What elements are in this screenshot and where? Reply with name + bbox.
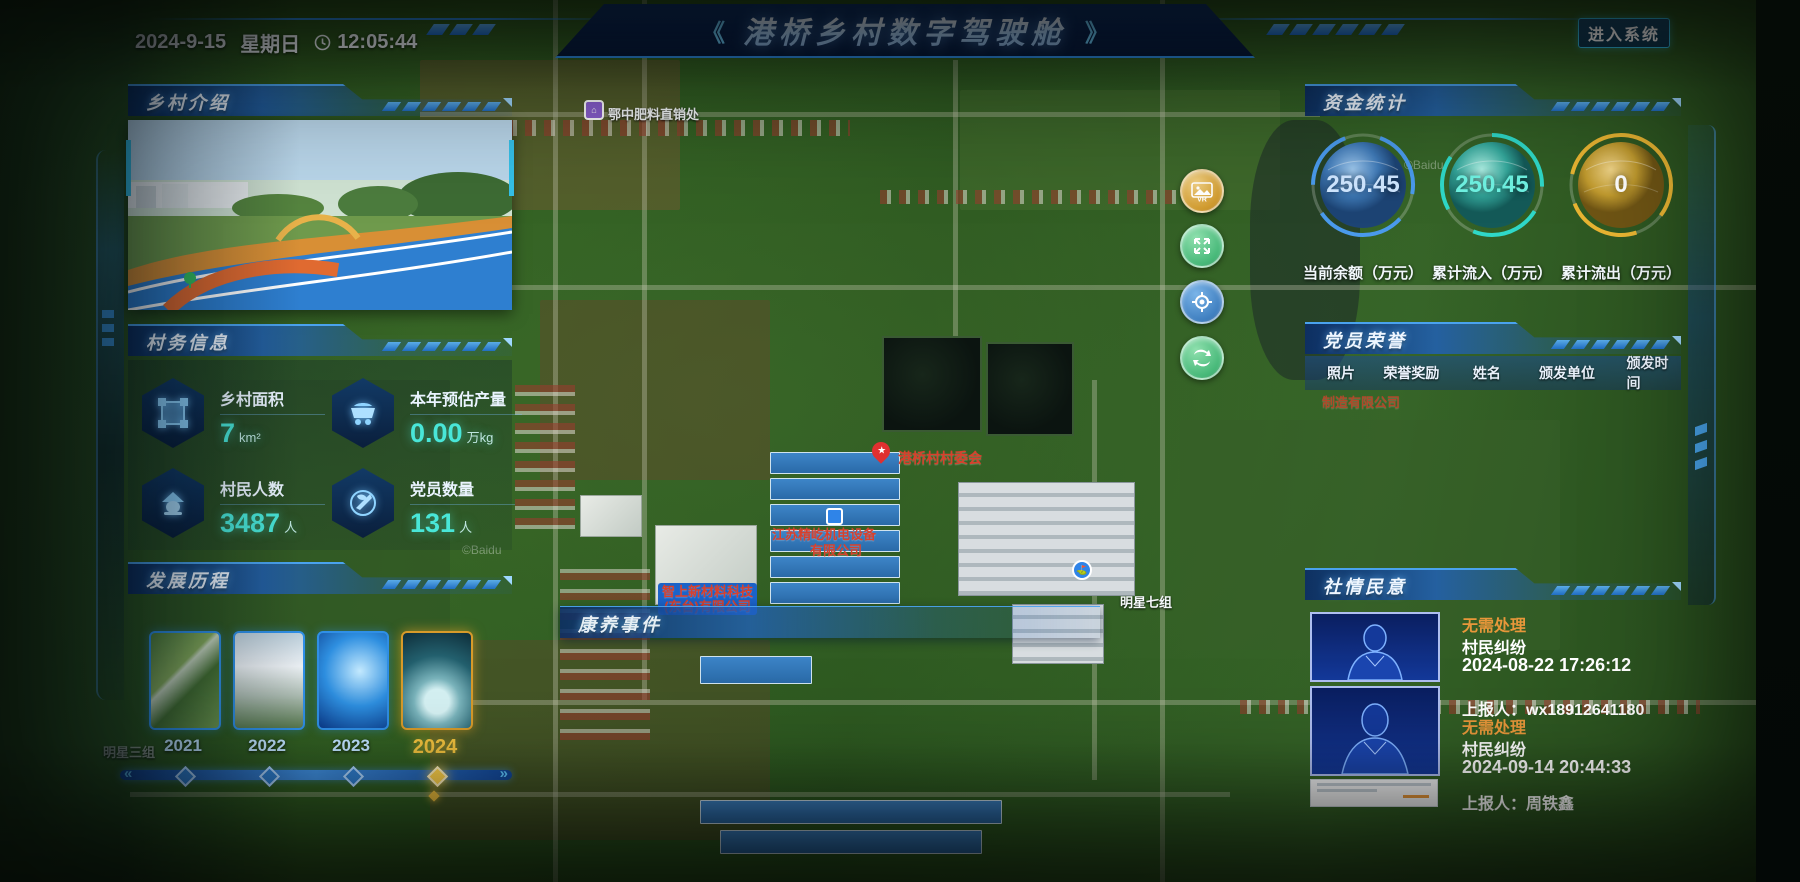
panel-title: 康养事件 <box>578 611 662 637</box>
map-factory-roof <box>770 556 900 578</box>
header-deco-line <box>1180 18 1600 20</box>
map-road <box>953 60 958 360</box>
year-2023[interactable]: 2023 <box>317 736 385 756</box>
panel-health-events-header: 康养事件 <box>560 606 1100 638</box>
panel-title: 村务信息 <box>146 329 230 355</box>
map-pond <box>882 336 982 432</box>
stat-party-member-count: 党员数量 131人 <box>332 468 522 548</box>
map-label-company2-line1: 智上新材料科技 <box>662 584 753 599</box>
panel-title: 社情民意 <box>1323 573 1407 599</box>
development-thumb-2022[interactable] <box>233 631 305 730</box>
map-factory-roof <box>720 830 982 854</box>
map-houses <box>515 385 575 535</box>
opinion-time: 2024-08-22 17:26:12 <box>1462 655 1631 676</box>
year-2024[interactable]: 2024 <box>401 736 469 759</box>
panel-public-opinion-header: 社情民意 <box>1305 568 1681 600</box>
opinion-reporter: 上报人：周铁鑫 <box>1462 790 1574 814</box>
development-thumb-2023[interactable] <box>317 631 389 730</box>
party-honor-table-header: 照片 荣誉奖励 姓名 颁发单位 颁发时间 <box>1305 356 1681 390</box>
title-arrow-right-icon: 》 <box>1085 13 1109 48</box>
photo-accent-bar <box>126 140 131 196</box>
map-houses <box>560 560 650 740</box>
map-label-fertilizer: 鄂中肥料直销处 <box>608 104 699 123</box>
stat-value: 3487 <box>220 508 280 538</box>
panel-title: 资金统计 <box>1323 89 1407 115</box>
map-factory-roof <box>770 582 900 604</box>
column-header: 荣誉奖励 <box>1383 363 1472 383</box>
switch-layers-button[interactable] <box>1180 336 1224 380</box>
stat-unit: 人 <box>459 520 472 535</box>
left-deco-frame <box>96 150 124 700</box>
map-road <box>130 792 1230 797</box>
map-label-company3-partial: 制造有限公司 <box>1322 392 1400 411</box>
map-building <box>580 495 642 537</box>
page-title-banner: 《 港桥乡村数字驾驶舱 》 <box>555 4 1255 58</box>
stat-label: 乡村面积 <box>220 386 325 415</box>
gauge-label: 累计流出（万元） <box>1546 262 1696 283</box>
panel-title: 乡村介绍 <box>146 89 230 115</box>
weekday-text: 星期日 <box>240 28 300 57</box>
datetime-display: 2024-9-15 星期日 12:05:44 <box>135 28 417 57</box>
header-deco-stripes <box>430 24 492 35</box>
map-road <box>1160 0 1165 882</box>
stat-label: 村民人数 <box>220 476 325 505</box>
fertilizer-marker-icon[interactable]: ⌂ <box>584 100 604 120</box>
villager-icon <box>142 468 204 538</box>
timeline-slider[interactable]: « » <box>120 770 512 780</box>
development-thumb-2021[interactable] <box>149 631 221 730</box>
year-2021[interactable]: 2021 <box>149 736 217 756</box>
map-factory-roof <box>700 800 1002 824</box>
stat-unit: 人 <box>284 520 297 535</box>
map-factory-roof <box>770 478 900 500</box>
svg-text:VR: VR <box>1197 197 1207 203</box>
column-header: 姓名 <box>1473 363 1539 383</box>
right-deco-frame <box>1688 125 1716 605</box>
map-pond <box>986 342 1074 436</box>
gauge-outflow: 0 <box>1566 130 1676 240</box>
gauge-value: 250.45 <box>1437 130 1547 240</box>
clock-icon <box>314 34 331 51</box>
title-arrow-left-icon: 《 <box>701 13 725 48</box>
stat-village-area: 乡村面积 7km² <box>142 378 332 458</box>
time-text: 12:05:44 <box>337 31 417 54</box>
panel-village-intro-header: 乡村介绍 <box>128 84 512 116</box>
dashboard-root: ⌂ 鄂中肥料直销处 ★ 港桥村村委会 江苏精屹机电设备 有限公司 智上新材料科技… <box>0 0 1800 882</box>
year-2022[interactable]: 2022 <box>233 736 301 756</box>
stat-unit: km² <box>239 430 261 445</box>
map-label-committee: 港桥村村委会 <box>898 448 982 468</box>
panel-village-affairs-header: 村务信息 <box>128 324 512 356</box>
map-label-group7: 明星七组 <box>1120 592 1172 611</box>
group7-marker-icon[interactable]: ⛳ <box>1072 560 1092 580</box>
panel-funds-header: 资金统计 <box>1305 84 1681 116</box>
development-thumb-2024[interactable] <box>401 631 473 730</box>
panel-development-header: 发展历程 <box>128 562 512 594</box>
opinion-item-attachment[interactable] <box>1310 779 1438 807</box>
stat-unit: 万kg <box>467 430 494 445</box>
header-deco-line <box>150 18 630 20</box>
locate-button[interactable] <box>1180 280 1224 324</box>
gauge-label: 累计流入（万元） <box>1417 262 1567 283</box>
column-header: 照片 <box>1305 363 1383 383</box>
gauge-value: 0 <box>1566 130 1676 240</box>
screen-right-black-strip <box>1756 0 1800 882</box>
header-deco-stripes <box>1270 24 1401 35</box>
stat-value: 7 <box>220 418 235 448</box>
slider-prev-icon[interactable]: « <box>124 765 132 782</box>
company1-marker-icon[interactable] <box>826 508 843 525</box>
map-warehouse <box>958 482 1135 596</box>
cart-icon <box>332 378 394 448</box>
stat-label: 本年预估产量 <box>410 386 522 415</box>
panel-title: 党员荣誉 <box>1323 327 1407 353</box>
stat-villager-count: 村民人数 3487人 <box>142 468 332 548</box>
stat-label: 党员数量 <box>410 476 515 505</box>
stat-value: 0.00 <box>410 418 463 448</box>
map-label-group3: 明星三组 <box>103 742 155 761</box>
map-label-company1-line2: 有限公司 <box>810 540 862 559</box>
opinion-item-avatar[interactable] <box>1310 686 1440 776</box>
vr-view-button[interactable]: VR <box>1180 169 1224 213</box>
page-title: 港桥乡村数字驾驶舱 <box>743 8 1067 52</box>
opinion-status: 无需处理 <box>1462 714 1526 738</box>
panel-title: 发展历程 <box>146 567 230 593</box>
fullscreen-button[interactable] <box>1180 224 1224 268</box>
enter-system-button[interactable]: 进入系统 <box>1578 18 1670 48</box>
gauge-value: 250.45 <box>1308 130 1418 240</box>
gauge-inflow: 250.45 <box>1437 130 1547 240</box>
map-houses <box>880 190 1210 204</box>
village-photo <box>128 120 512 310</box>
opinion-time: 2024-09-14 20:44:33 <box>1462 757 1631 778</box>
panel-party-honor-header: 党员荣誉 <box>1305 322 1681 354</box>
area-icon <box>142 378 204 448</box>
stat-value: 131 <box>410 508 455 538</box>
photo-accent-bar <box>509 140 514 196</box>
party-icon <box>332 468 394 538</box>
opinion-status: 无需处理 <box>1462 612 1526 636</box>
stat-estimated-output: 本年预估产量 0.00万kg <box>332 378 522 458</box>
column-header: 颁发单位 <box>1539 363 1627 383</box>
map-road <box>420 112 1320 117</box>
gauge-balance: 250.45 <box>1308 130 1418 240</box>
map-road <box>420 285 1800 290</box>
gauge-label: 当前余额（万元） <box>1288 262 1438 283</box>
map-factory-roof <box>700 656 812 684</box>
opinion-item-avatar[interactable] <box>1310 612 1440 682</box>
date-text: 2024-9-15 <box>135 31 226 54</box>
slider-next-icon[interactable]: » <box>500 765 508 782</box>
column-header: 颁发时间 <box>1627 353 1681 393</box>
